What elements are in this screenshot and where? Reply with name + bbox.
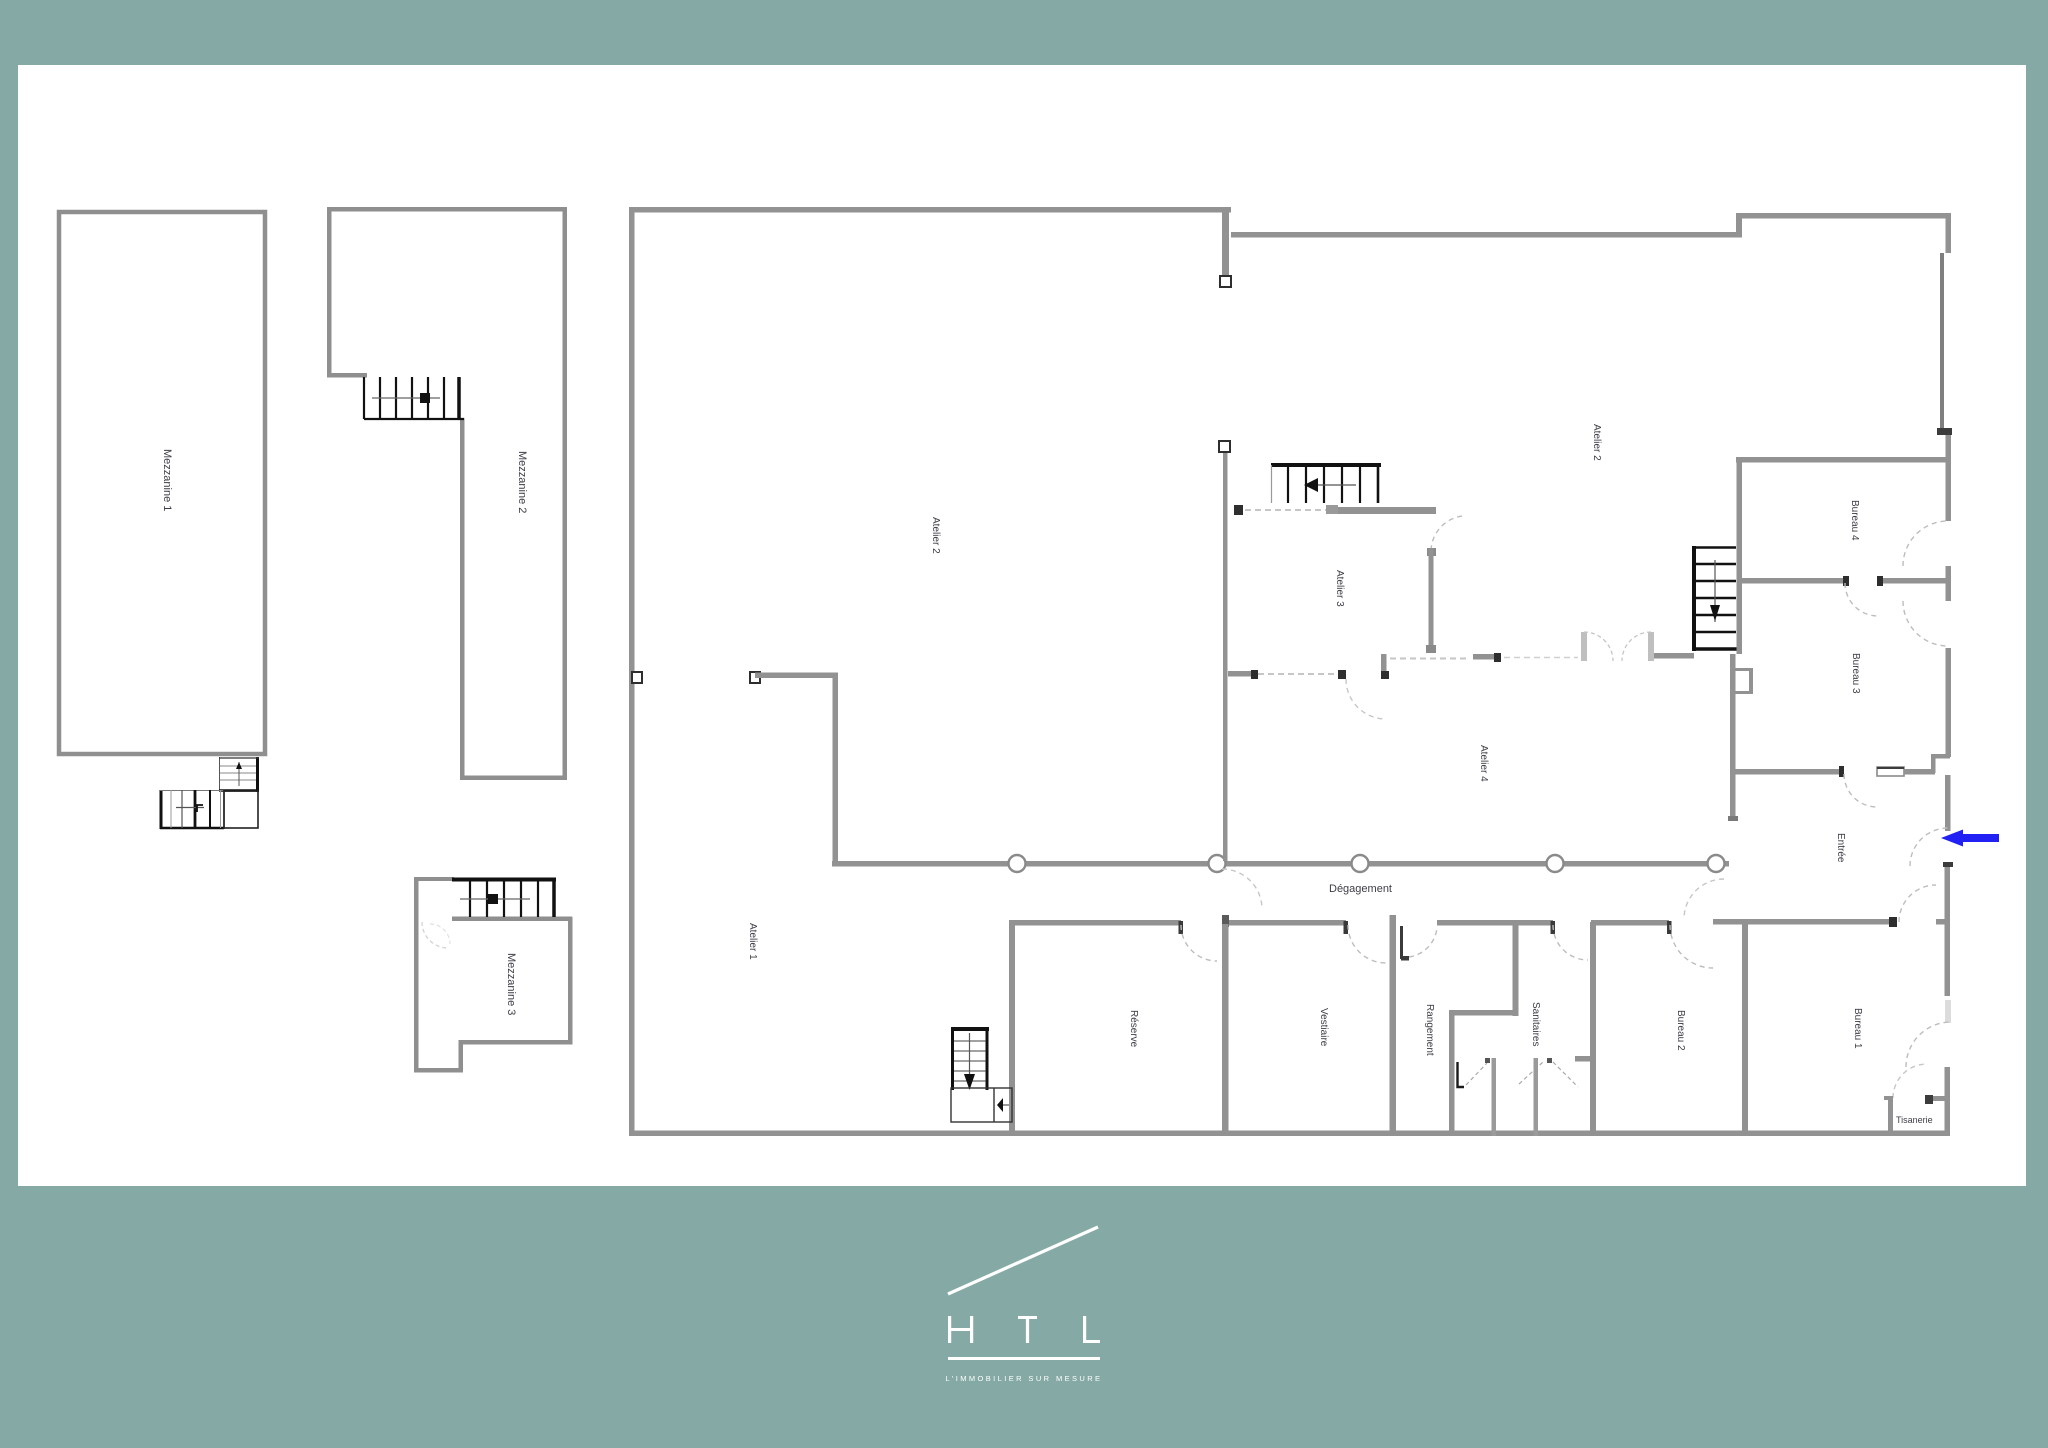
svg-text:Dégagement: Dégagement xyxy=(1329,883,1392,895)
svg-text:Bureau 3: Bureau 3 xyxy=(1850,653,1861,694)
svg-text:Tisanerie: Tisanerie xyxy=(1896,1115,1933,1125)
svg-text:Rangement: Rangement xyxy=(1424,1004,1435,1056)
svg-text:Bureau 4: Bureau 4 xyxy=(1849,500,1860,541)
svg-text:Bureau 1: Bureau 1 xyxy=(1852,1008,1863,1049)
svg-text:Atelier 1: Atelier 1 xyxy=(747,923,758,960)
svg-text:Mezzanine 3: Mezzanine 3 xyxy=(505,953,517,1015)
svg-text:Vestiaire: Vestiaire xyxy=(1318,1008,1329,1047)
svg-text:Atelier 2: Atelier 2 xyxy=(930,517,941,554)
svg-text:L’IMMOBILIER SUR MESURE: L’IMMOBILIER SUR MESURE xyxy=(946,1374,1103,1383)
svg-text:Atelier 2: Atelier 2 xyxy=(1591,424,1602,461)
svg-text:Mezzanine 1: Mezzanine 1 xyxy=(161,449,173,511)
svg-text:Entrée: Entrée xyxy=(1835,833,1846,863)
svg-text:Réserve: Réserve xyxy=(1128,1010,1139,1048)
svg-text:Atelier 4: Atelier 4 xyxy=(1478,745,1489,782)
svg-text:Mezzanine 2: Mezzanine 2 xyxy=(516,451,528,513)
svg-text:Bureau 2: Bureau 2 xyxy=(1675,1010,1686,1051)
svg-text:Atelier 3: Atelier 3 xyxy=(1334,570,1345,607)
svg-text:Sanitaires: Sanitaires xyxy=(1530,1002,1541,1046)
